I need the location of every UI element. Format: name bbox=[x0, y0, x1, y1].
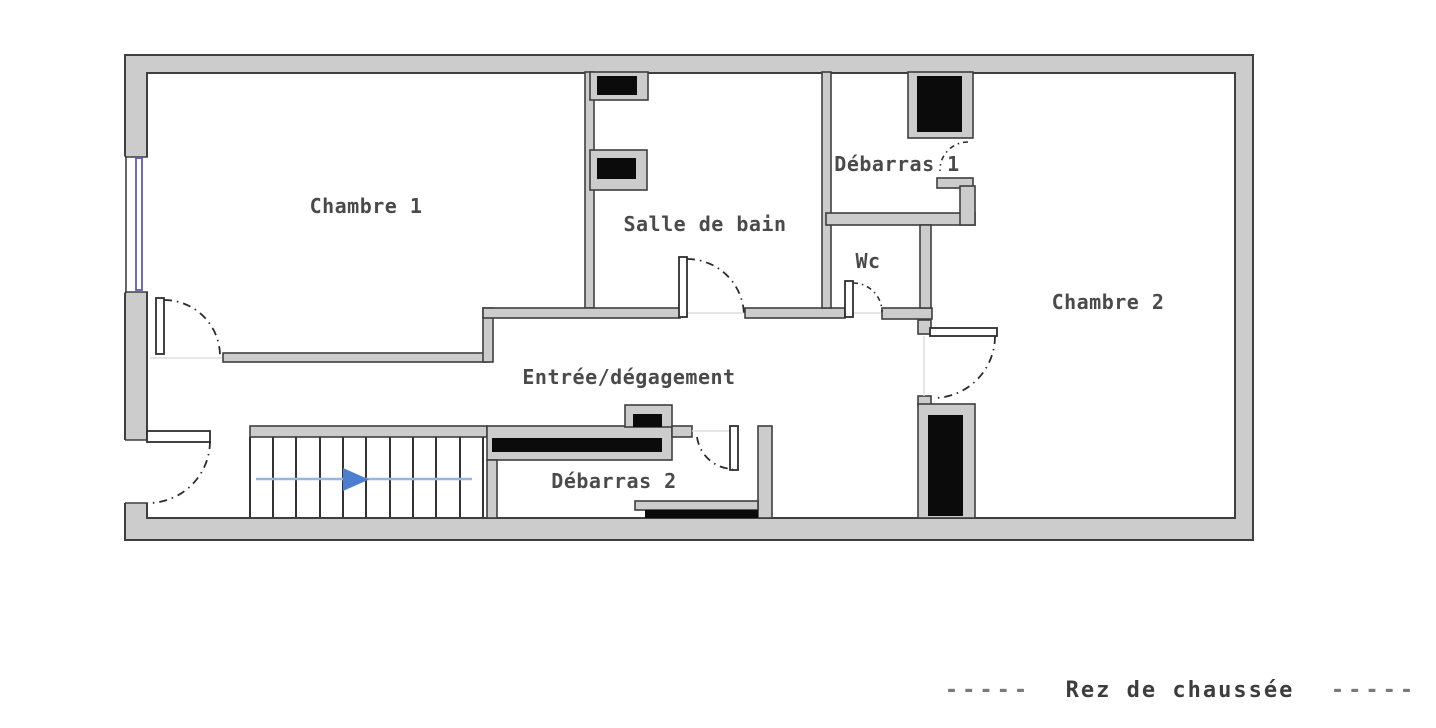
wall-segment bbox=[822, 72, 831, 308]
wall-segment bbox=[960, 186, 975, 225]
door-leaf-salle-de-bain bbox=[679, 257, 687, 317]
caption-left-dashes: ----- bbox=[945, 678, 1031, 703]
wall-segment bbox=[882, 308, 932, 319]
duct-chambre2 bbox=[928, 415, 963, 516]
room-label-debarras1: Débarras 1 bbox=[834, 152, 959, 176]
wall-segment bbox=[487, 460, 497, 518]
door-arc-chambre1 bbox=[164, 300, 220, 356]
caption-label: Rez de chaussée bbox=[1066, 678, 1295, 703]
door-leaf-chambre1 bbox=[156, 298, 164, 354]
room-label-chambre1: Chambre 1 bbox=[310, 194, 423, 218]
door-arc-chambre2 bbox=[933, 336, 995, 398]
shelf-debarras2-bottom bbox=[645, 510, 758, 518]
room-label-entree: Entrée/dégagement bbox=[522, 365, 735, 389]
flue-salle-de-bain-1 bbox=[597, 76, 637, 95]
door-arc-entrance bbox=[148, 441, 210, 503]
caption-right-dashes: ----- bbox=[1331, 678, 1417, 703]
room-label-wc: Wc bbox=[855, 249, 880, 273]
wall-segment bbox=[745, 308, 845, 318]
wall-segment bbox=[250, 426, 487, 437]
door-arc-salle-de-bain bbox=[687, 259, 744, 316]
wall-segment bbox=[920, 225, 931, 308]
floor-plan-svg: Chambre 1 Salle de bain Débarras 1 Wc Ch… bbox=[0, 0, 1436, 728]
wall-segment bbox=[758, 426, 772, 518]
door-arc-debarras2 bbox=[697, 437, 733, 469]
entrance-opening bbox=[123, 440, 149, 503]
window-icon bbox=[136, 158, 142, 290]
door-leaf-entrance bbox=[147, 431, 210, 442]
duct-debarras1 bbox=[917, 76, 962, 132]
shelf-debarras2-top bbox=[492, 438, 662, 452]
stairs-direction-arrow bbox=[256, 468, 472, 491]
door-leaf-debarras2 bbox=[730, 426, 738, 470]
stairs-steps bbox=[250, 437, 483, 517]
wall-segment bbox=[635, 501, 758, 510]
wall-segment bbox=[918, 320, 931, 334]
wall-segment bbox=[223, 353, 488, 362]
wall-segment bbox=[483, 308, 680, 318]
stairs-group bbox=[250, 437, 483, 517]
room-label-chambre2: Chambre 2 bbox=[1052, 290, 1165, 314]
room-label-salle-de-bain: Salle de bain bbox=[623, 212, 786, 236]
room-label-debarras2: Débarras 2 bbox=[551, 469, 676, 493]
fixtures bbox=[492, 76, 963, 518]
door-leaf-chambre2 bbox=[930, 328, 997, 336]
door-leaf-wc bbox=[845, 281, 853, 317]
wall-segment bbox=[826, 213, 975, 225]
duct-debarras2-top bbox=[633, 414, 662, 427]
door-arc-wc bbox=[853, 283, 882, 312]
wall-segment bbox=[672, 426, 692, 437]
flue-salle-de-bain-2 bbox=[597, 158, 636, 179]
floor-caption: ----- Rez de chaussée ----- bbox=[945, 678, 1417, 703]
